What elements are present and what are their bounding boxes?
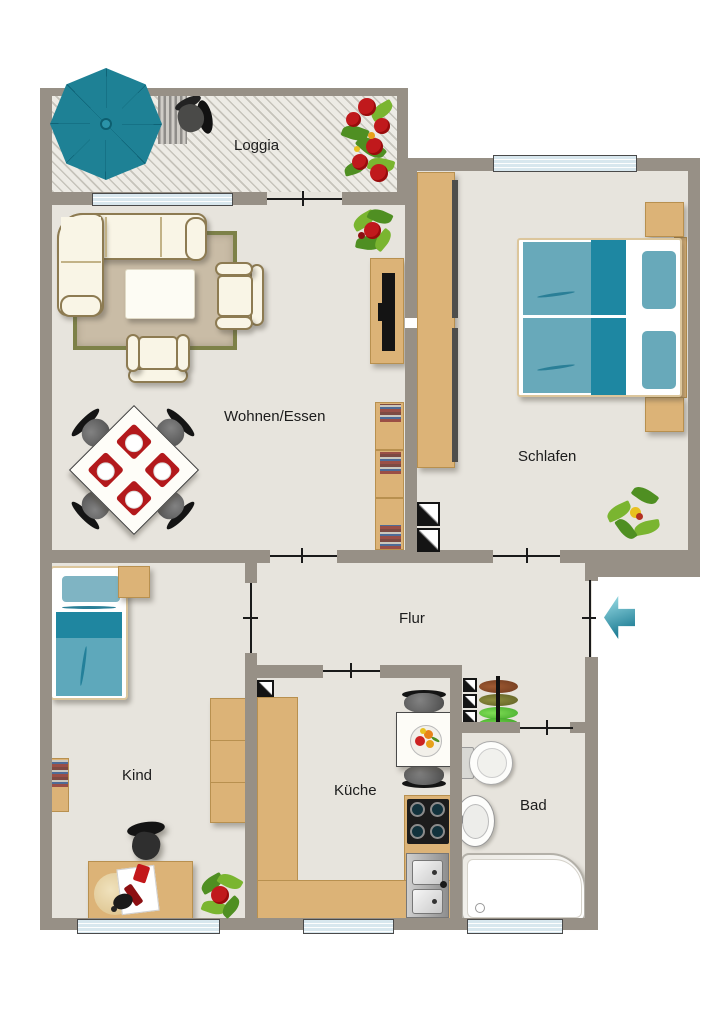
umbrella [50, 68, 162, 180]
pillow [639, 328, 679, 392]
nightstand [645, 202, 684, 237]
sofa-armrest [185, 217, 207, 261]
entry-arrow-icon [604, 596, 635, 639]
plant [198, 873, 242, 919]
plant [606, 487, 662, 541]
desk-chair [123, 816, 169, 864]
door-tick [350, 663, 352, 678]
wall [450, 665, 462, 930]
bathtub [461, 853, 586, 922]
floor-plan: Loggia Wohnen/Essen Schlafen Flur Kind K… [0, 0, 723, 1024]
stove [407, 799, 449, 844]
room-label-kind: Kind [122, 768, 152, 783]
room-label-flur: Flur [399, 611, 425, 626]
desk [88, 861, 193, 919]
shoe-rack [479, 678, 518, 726]
kitchen-sink [406, 853, 449, 918]
placemat [144, 452, 181, 489]
wardrobe [210, 698, 247, 823]
coffee-table [125, 269, 195, 319]
kitchen-table-set [395, 690, 453, 788]
wall [688, 171, 700, 550]
window [467, 919, 563, 934]
shaft-marker [463, 678, 477, 692]
wall [342, 192, 408, 205]
plant [350, 208, 394, 254]
armchair [126, 334, 190, 384]
bookshelf [375, 498, 404, 550]
flower-box [340, 96, 398, 188]
wall [570, 722, 598, 733]
wall [585, 657, 598, 930]
wall [40, 88, 52, 200]
room-label-bad: Bad [520, 798, 547, 813]
shaft-marker [417, 502, 440, 526]
wall [585, 563, 598, 581]
wardrobe-door-line [452, 180, 458, 318]
wall [462, 722, 520, 733]
bookshelf [375, 402, 404, 450]
placemat [116, 480, 153, 517]
shaft-marker [463, 694, 477, 708]
door-tick [302, 191, 304, 206]
wall [40, 550, 270, 563]
wall [337, 550, 405, 563]
door-tick [243, 617, 258, 619]
wardrobe [417, 172, 455, 468]
wall [585, 563, 700, 577]
door [267, 198, 342, 200]
placemat [116, 423, 153, 460]
bookshelf [375, 450, 404, 498]
drain-icon [475, 903, 485, 913]
double-bed [517, 238, 682, 397]
tv-sideboard [370, 258, 404, 364]
pillow [639, 248, 679, 312]
window [493, 155, 637, 172]
window [92, 193, 233, 206]
shaft-marker [257, 680, 274, 697]
door-tick [546, 720, 548, 735]
window [303, 919, 394, 934]
placemat [87, 452, 124, 489]
nightstand [118, 566, 150, 598]
pillow [60, 574, 122, 604]
wall [40, 198, 52, 930]
wall [245, 550, 257, 583]
wall [560, 550, 700, 563]
sofa-armrest [60, 295, 102, 317]
wall-notch [405, 318, 417, 328]
armchair [215, 262, 265, 330]
room-label-schlafen: Schlafen [518, 449, 576, 464]
fruit-bowl-icon [410, 725, 442, 757]
shaft-marker [417, 528, 440, 552]
wall [405, 171, 417, 563]
toilet [459, 739, 513, 785]
tv-icon [382, 273, 395, 351]
dining-set [68, 404, 198, 534]
patio-chair [170, 96, 216, 140]
rack-pole-icon [496, 676, 500, 728]
wardrobe-door-line [452, 328, 458, 462]
single-bed [50, 566, 128, 700]
room-label-loggia: Loggia [234, 138, 279, 153]
door [270, 555, 337, 557]
wall [245, 665, 323, 678]
door-tick [301, 548, 303, 563]
kitchen-table [396, 712, 452, 767]
room-label-kueche: Küche [334, 783, 377, 798]
window [77, 919, 220, 934]
door-tick [526, 548, 528, 563]
wall [380, 665, 453, 678]
wall [245, 653, 257, 930]
room-label-wohnen: Wohnen/Essen [224, 409, 325, 424]
door-tick [582, 617, 596, 619]
nightstand [645, 397, 684, 432]
